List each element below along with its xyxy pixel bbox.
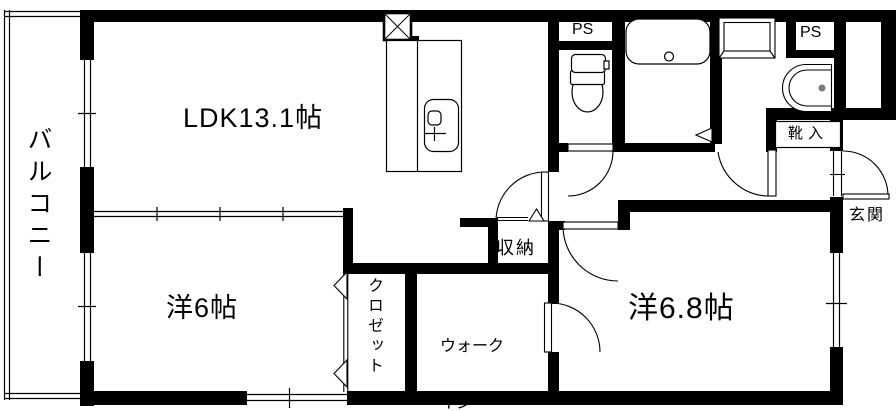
entrance-door bbox=[830, 151, 889, 199]
bottom-wall-left bbox=[80, 391, 247, 405]
west6-balcony-window bbox=[78, 253, 96, 361]
closet-label: クロゼット bbox=[361, 277, 385, 377]
balcony-label: バルコニー bbox=[20, 126, 56, 286]
bathtub bbox=[626, 19, 710, 64]
walk-in-closet-label-line1: ウォーク bbox=[440, 337, 520, 356]
ldk-room-label: LDK13.1帖 bbox=[183, 96, 323, 135]
storage-label: 収納 bbox=[496, 234, 536, 260]
washroom-right-wall bbox=[834, 12, 846, 110]
kitchen bbox=[384, 13, 462, 172]
hall-north-wall-mid bbox=[612, 143, 715, 152]
west6-south-window bbox=[247, 388, 347, 408]
closet-divider-wall bbox=[405, 263, 417, 397]
storage-folding-door bbox=[497, 209, 544, 221]
walk-in-closet-label-line2: イン bbox=[440, 394, 520, 411]
hall-south-wall bbox=[620, 200, 843, 212]
left-wall-mid bbox=[80, 167, 94, 253]
left-wall-upper bbox=[80, 10, 94, 60]
shoe-cabinet-label: 靴入 bbox=[775, 121, 841, 147]
hall-north-wall-west bbox=[548, 143, 568, 152]
ldk-west6-sliding-partition bbox=[94, 207, 343, 221]
ldk-door bbox=[496, 172, 549, 221]
ps1-bottom-wall bbox=[552, 41, 622, 50]
toilet-fixture bbox=[571, 55, 610, 113]
west6-closet-post-wall bbox=[343, 208, 353, 268]
floorplan: バルコニー LDK13.1帖 洋6帖 洋6.8帖 クロゼット ウォーク イン ク… bbox=[0, 0, 896, 411]
washbasin bbox=[782, 64, 831, 112]
washing-machine-pan bbox=[719, 18, 775, 58]
closet-top-wall bbox=[343, 263, 559, 274]
west68-door bbox=[563, 222, 618, 281]
washroom-door bbox=[718, 150, 776, 196]
duct-x-box bbox=[384, 13, 411, 40]
right-wall-lower bbox=[830, 347, 843, 405]
western-room-6-8-label: 洋6.8帖 bbox=[628, 283, 735, 327]
toilet-bath-wall bbox=[612, 12, 625, 152]
pipe-space-right-label: PS bbox=[800, 24, 821, 42]
kitchen-sink bbox=[425, 100, 459, 152]
ldk-nook-wall bbox=[460, 218, 498, 227]
drain-icon bbox=[665, 52, 674, 61]
entrance-label: 玄関 bbox=[849, 201, 885, 225]
closet-bifold-doors bbox=[334, 268, 348, 392]
hall-south-step-wall bbox=[618, 200, 630, 230]
walk-in-closet-label: ウォーク イン クロゼット bbox=[440, 299, 520, 411]
ldk-balcony-window bbox=[78, 60, 96, 167]
wic-east-wall-lower bbox=[548, 352, 559, 398]
right-wall-top bbox=[881, 10, 896, 120]
bottom-wall-right bbox=[347, 391, 843, 405]
toilet-door bbox=[568, 144, 613, 196]
walk-in-closet-door bbox=[545, 303, 601, 352]
bathroom-folding-door bbox=[696, 128, 712, 142]
west68-east-window bbox=[826, 252, 847, 347]
faucet-dot-icon bbox=[819, 85, 826, 92]
western-room-6-label: 洋6帖 bbox=[166, 286, 238, 325]
pipe-space-top-label: PS bbox=[572, 21, 593, 39]
